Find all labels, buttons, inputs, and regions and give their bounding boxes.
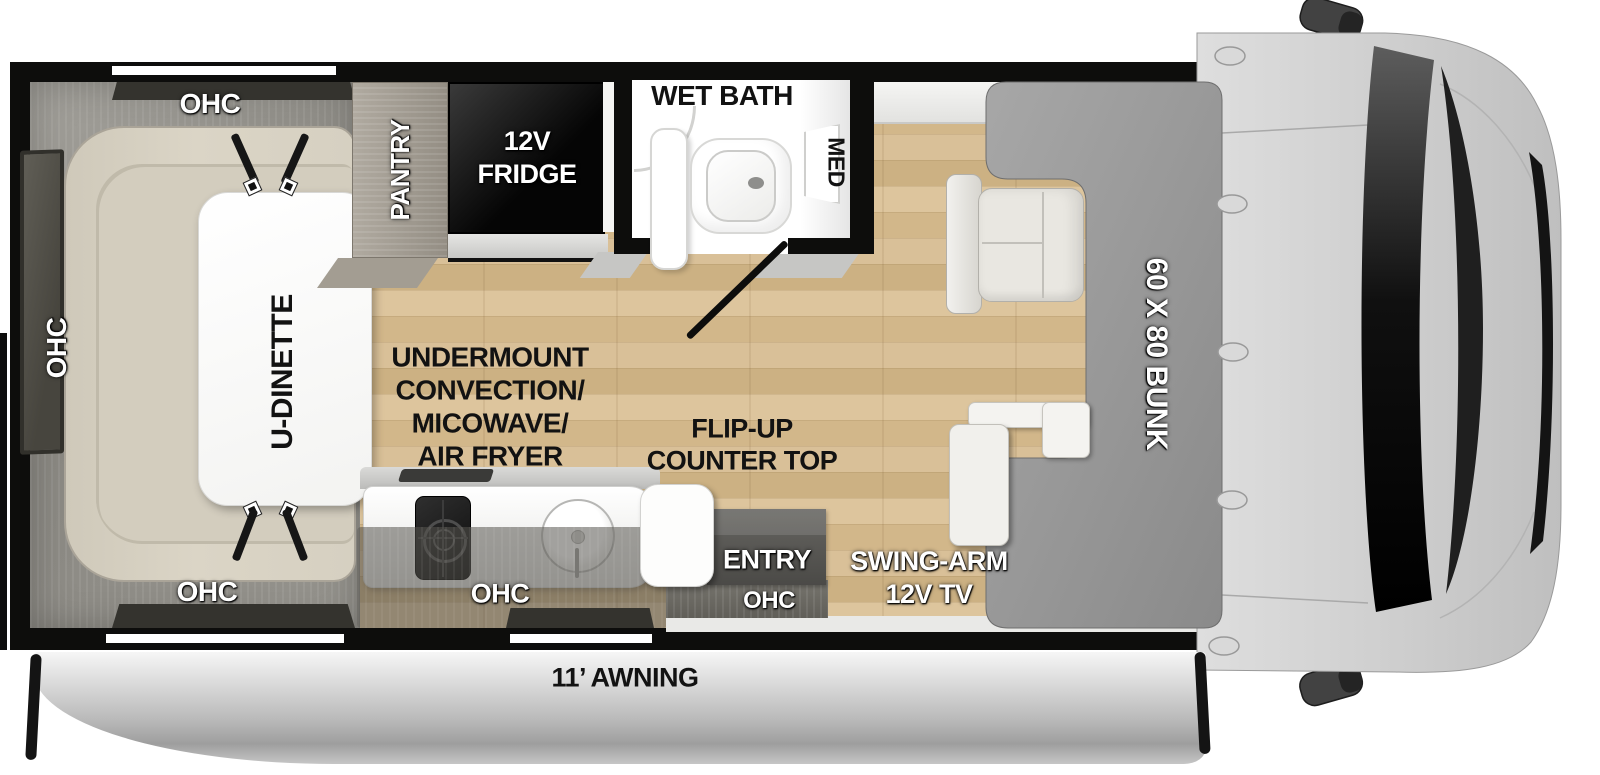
cab-seat [946,172,1088,318]
window-strip-top [112,66,336,75]
seatbelt-strap-icon [232,508,259,561]
label-fridge: 12V FRIDGE [477,128,576,188]
bunk-platform [986,82,1222,628]
flip-up-counter [640,484,714,587]
shower-door-panel [650,128,688,270]
seatbelt-icons-top [222,128,318,192]
window-strip-bottom-left [106,634,344,643]
label-fridge-line1: 12V [477,128,576,155]
window-strip-bottom-kitchen [510,634,652,643]
pantry-base-shadow [317,258,438,288]
label-appliance-line4: AIR FRYER [391,443,588,471]
awning-arm-left [25,654,42,760]
label-entry: ENTRY [723,547,811,574]
label-fridge-line2: FRIDGE [477,161,576,188]
label-swing-arm-tv: SWING-ARM 12V TV [850,548,1007,608]
cab-seat-cushion [978,188,1084,302]
label-appliance-line3: MICOWAVE/ [391,410,588,438]
rv-floorplan: OHC OHC OHC U-DINETTE PANTRY 12V FRIDGE … [0,0,1600,775]
label-appliance-line2: CONVECTION/ [391,377,588,405]
label-tv-line2: 12V TV [850,581,1007,608]
dinette-window-side [20,149,64,455]
tv-arm-elbow [1042,402,1090,458]
seat-seam [982,242,1044,244]
entry-door-top [707,509,826,535]
seatbelt-strap-icon [282,508,309,561]
toilet-bowl [706,150,776,222]
label-awning: 11’ AWNING [551,665,698,692]
kitchen-window [506,608,654,628]
label-ohc-side: OHC [43,318,71,379]
left-exterior-trim [0,333,7,650]
dinette-window-bottom [112,604,355,628]
toilet-flush-icon [748,177,764,189]
label-appliance-line1: UNDERMOUNT [391,344,588,372]
label-ohc-top: OHC [180,90,241,118]
label-med: MED [825,137,848,187]
label-wet-bath: WET BATH [651,82,793,110]
label-ohc-entry: OHC [743,589,795,613]
label-undermount-appliance: UNDERMOUNT CONVECTION/ MICOWAVE/ AIR FRY… [391,344,588,471]
label-pantry: PANTRY [387,120,413,221]
seat-seam [1042,192,1044,298]
label-flip-up-counter: FLIP-UP COUNTER TOP [647,416,838,475]
label-ohc-kitchen: OHC [471,581,530,608]
cab-seat-back [946,174,982,314]
fridge-base [448,234,608,262]
seatbelt-icons-bottom [222,498,318,562]
label-u-dinette: U-DINETTE [268,294,298,450]
label-flip-line2: COUNTER TOP [647,448,838,475]
label-ohc-bottom: OHC [177,578,238,606]
tv-icon [949,424,1009,546]
label-flip-line1: FLIP-UP [647,416,838,443]
label-bunk: 60 X 80 BUNK [1141,258,1171,450]
label-tv-line1: SWING-ARM [850,548,1007,575]
